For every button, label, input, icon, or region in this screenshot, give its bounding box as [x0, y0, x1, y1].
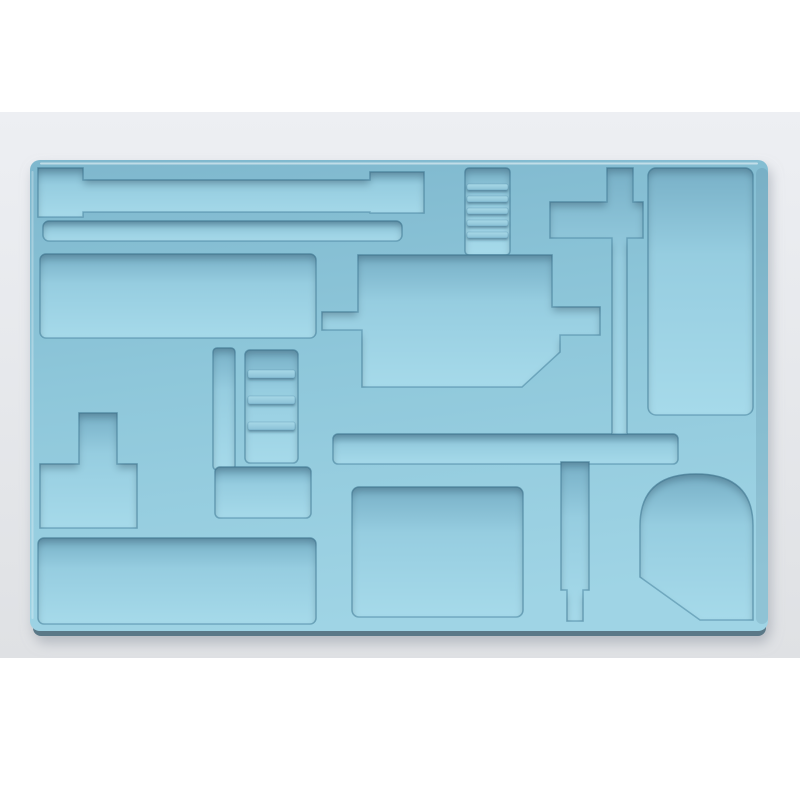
ladder-rung: [248, 396, 295, 404]
ladder-rung: [467, 232, 508, 238]
tray-photo-svg: [0, 0, 800, 800]
ladder-rung: [248, 422, 295, 430]
ladder-rung: [467, 196, 508, 202]
slot-thin: [43, 221, 402, 241]
compartment-right-tall: [648, 168, 753, 415]
ladder-rung: [467, 184, 508, 190]
ladder-slot-left: [245, 350, 298, 463]
compartment-left-large: [40, 254, 316, 338]
channel-horizontal: [333, 434, 678, 464]
ladder-rung: [467, 208, 508, 214]
compartment-bottom-left: [38, 538, 316, 624]
ladder-rung: [248, 370, 295, 378]
compartment-left-small: [215, 467, 311, 518]
channel-vertical-left: [213, 348, 235, 470]
ladder-rung: [467, 220, 508, 226]
compartment-bottom-middle: [352, 487, 523, 617]
tray-right-shade: [756, 168, 768, 624]
photo: Light blue molded plastic organizer tray…: [0, 0, 800, 800]
